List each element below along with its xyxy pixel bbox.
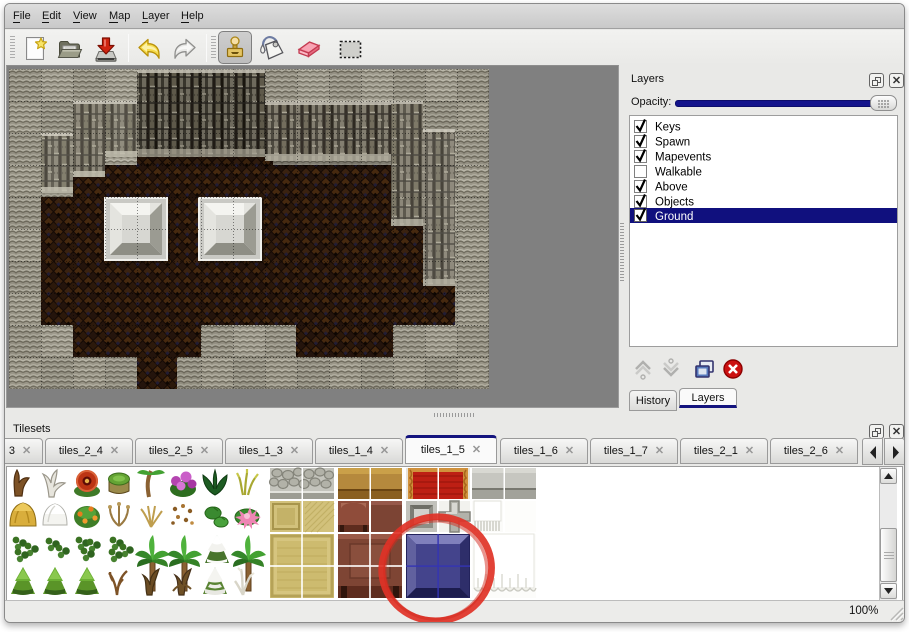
svg-text:Spawn: Spawn xyxy=(655,137,690,149)
svg-text:Walkable: Walkable xyxy=(655,167,702,179)
svg-text:Above: Above xyxy=(655,182,688,194)
svg-text:Keys: Keys xyxy=(655,122,681,134)
svg-text:Ground: Ground xyxy=(655,211,693,223)
svg-text:Mapevents: Mapevents xyxy=(655,152,712,164)
